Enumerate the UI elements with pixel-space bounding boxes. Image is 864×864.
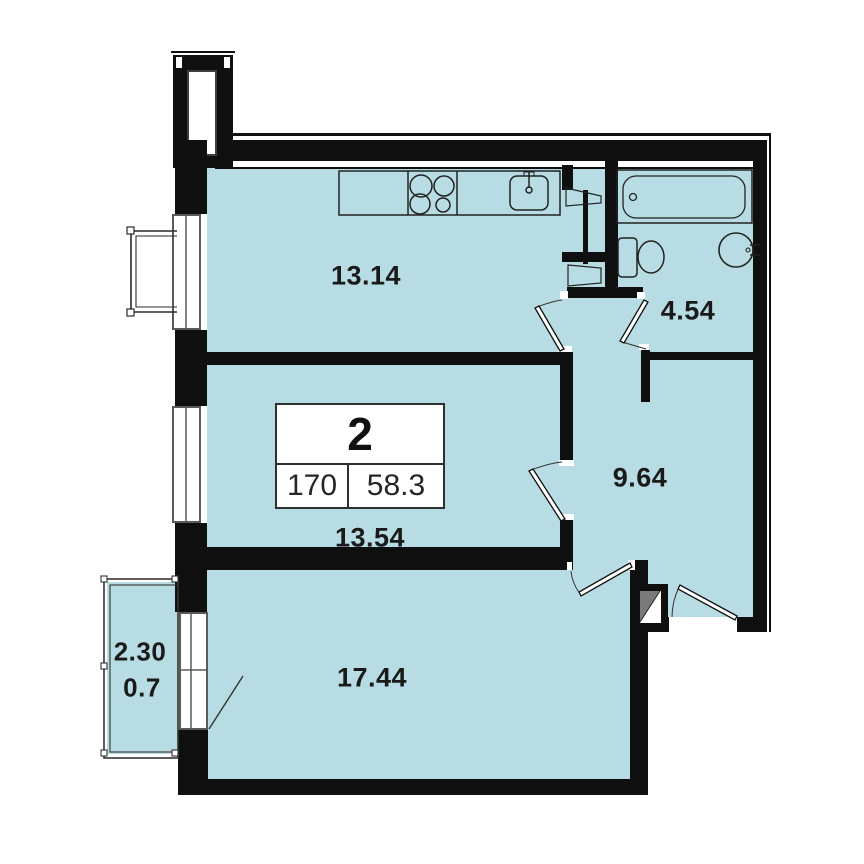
kitchen-window xyxy=(172,214,201,330)
jamb-roomlarge-left xyxy=(567,562,572,570)
jamb-roomlarge-right xyxy=(628,560,635,570)
wall-top-inner-face xyxy=(215,167,755,169)
duct-wall-cross xyxy=(562,252,605,262)
unit-info-badge: 2 170 58.3 xyxy=(275,403,445,509)
room-mid-area-label: 13.54 xyxy=(335,523,405,554)
jamb-roommid-top xyxy=(559,460,574,466)
outer-contour-right xyxy=(769,133,771,632)
wall-left-a xyxy=(175,140,207,214)
badge-cell-right: 58.3 xyxy=(349,465,443,507)
balcony-door-unit xyxy=(179,612,208,730)
outer-contour-chimney xyxy=(171,51,235,53)
rooms-count: 2 xyxy=(277,405,443,465)
wall-left-c xyxy=(175,523,207,612)
hallway-area-label: 9.64 xyxy=(613,463,668,494)
chimney-cap-left xyxy=(176,57,182,68)
chimney-cap-right xyxy=(224,57,230,68)
wall-bottom xyxy=(178,779,648,795)
jamb-kitchen-top xyxy=(560,291,568,299)
balcony-area-label: 0.7 xyxy=(123,673,161,704)
wall-hall-bottom-right xyxy=(737,617,767,632)
entry-shaft-inner xyxy=(640,591,661,623)
jamb-bath-bottom xyxy=(639,344,649,350)
wall-mid-vertical-a xyxy=(560,352,573,460)
room-mid-window xyxy=(172,406,201,523)
wall-top xyxy=(233,140,753,161)
jamb-entry-left xyxy=(669,617,675,632)
kitchen-railing xyxy=(127,227,177,316)
balcony-floor xyxy=(107,582,178,754)
duct-wall-column xyxy=(605,155,618,297)
jamb-kitchen-bottom xyxy=(558,346,572,352)
room-large-area-label: 17.44 xyxy=(337,663,407,694)
badge-cell-left: 170 xyxy=(277,465,349,507)
kitchen-area-label: 13.14 xyxy=(331,261,401,292)
wall-right xyxy=(753,140,767,632)
jamb-entry-right xyxy=(731,617,737,632)
bathroom-area-label: 4.54 xyxy=(661,296,716,327)
wall-left-b xyxy=(175,330,207,406)
wall-kitchen-bottom xyxy=(207,352,560,365)
outer-contour-top xyxy=(233,133,770,136)
jamb-roommid-bottom xyxy=(559,514,574,520)
wall-bath-bottom xyxy=(645,352,765,360)
floor-plan: 13.14 4.54 9.64 13.54 17.44 2.30 0.7 2 1… xyxy=(0,0,864,864)
duct-wall-stub xyxy=(562,165,573,190)
balcony-dim-label: 2.30 xyxy=(114,637,167,668)
jamb-bath-top xyxy=(637,292,645,299)
